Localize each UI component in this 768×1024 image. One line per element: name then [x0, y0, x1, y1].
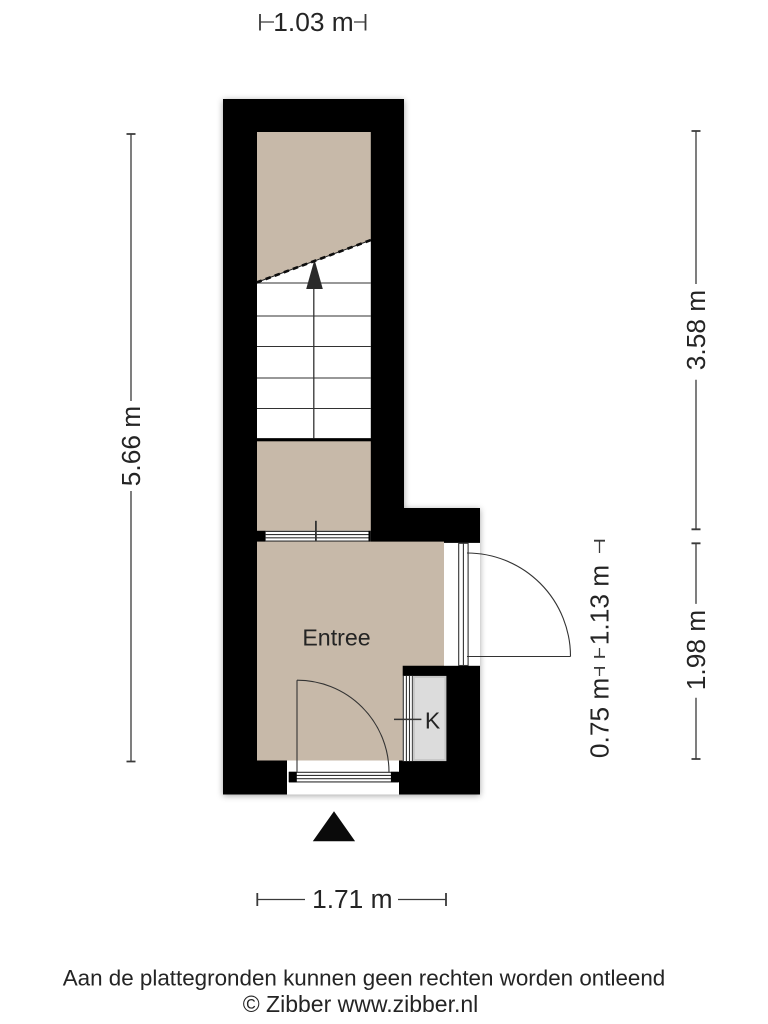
svg-text:Entree: Entree: [302, 625, 370, 651]
svg-text:1.13 m: 1.13 m: [585, 565, 615, 645]
svg-text:0.75 m: 0.75 m: [585, 678, 615, 758]
svg-text:1.98 m: 1.98 m: [681, 610, 711, 690]
svg-text:1.71 m: 1.71 m: [312, 884, 392, 914]
svg-text:5.66 m: 5.66 m: [116, 406, 146, 486]
svg-text:Aan de plattegronden kunnen ge: Aan de plattegronden kunnen geen rechten…: [63, 966, 666, 991]
svg-text:1.03 m: 1.03 m: [273, 7, 353, 37]
svg-text:K: K: [425, 708, 441, 734]
svg-text:3.58 m: 3.58 m: [681, 290, 711, 370]
svg-text:© Zibber www.zibber.nl: © Zibber www.zibber.nl: [243, 991, 479, 1017]
